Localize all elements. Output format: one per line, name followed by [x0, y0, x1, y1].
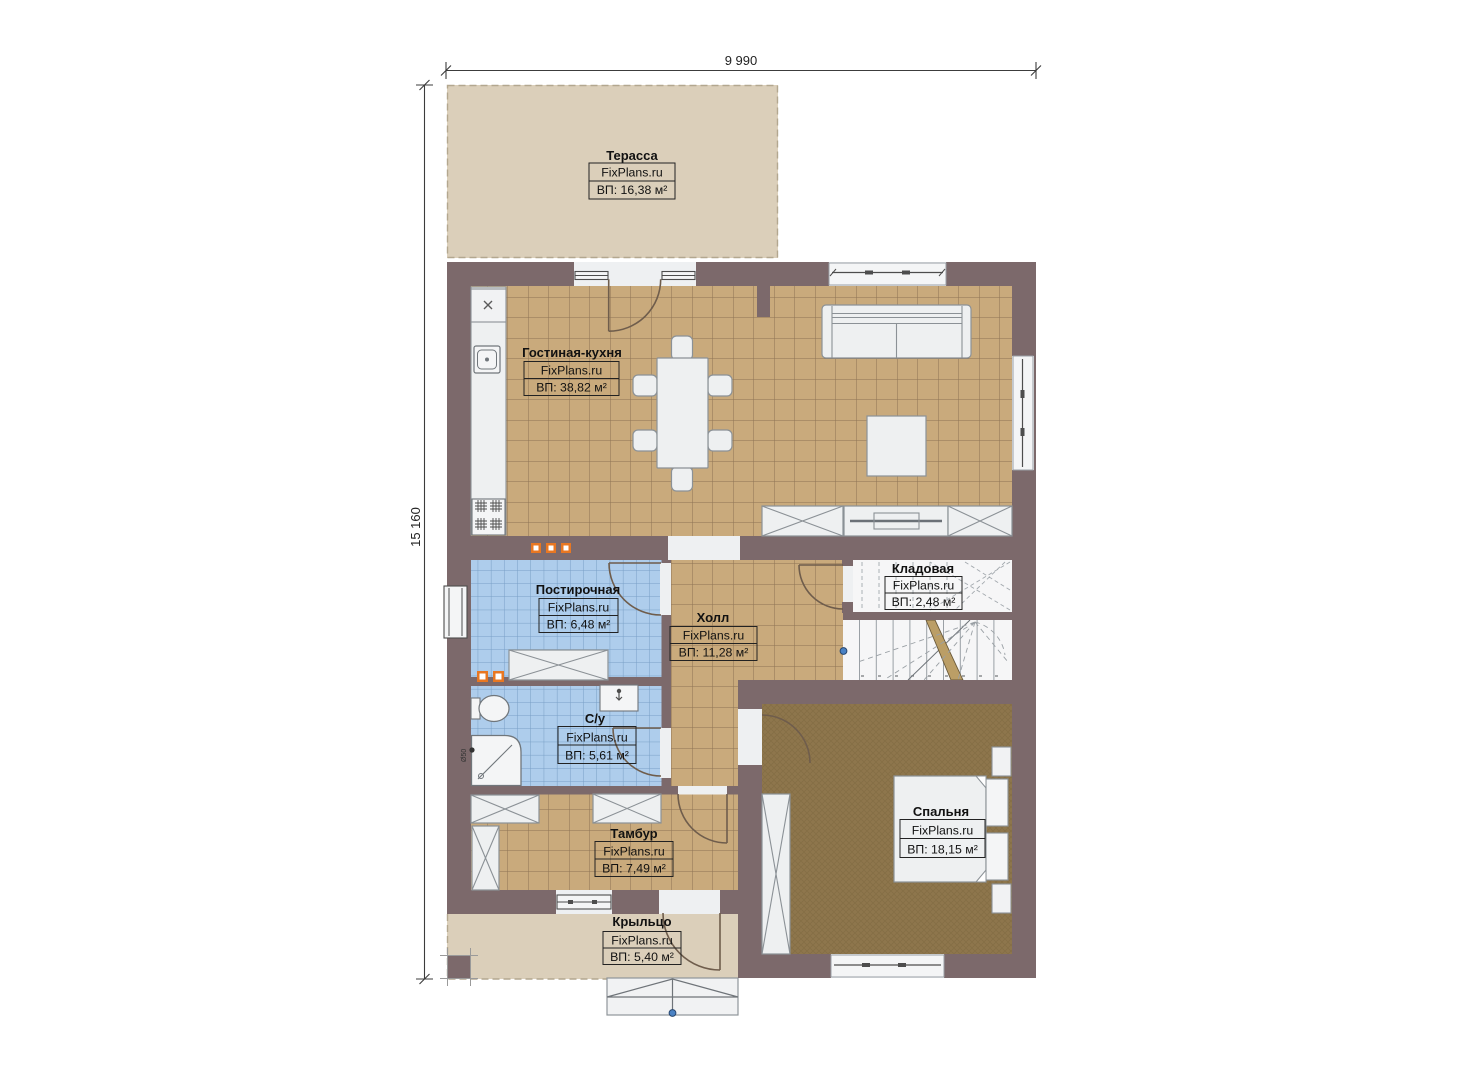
svg-text:FixPlans.ru: FixPlans.ru	[683, 629, 745, 643]
svg-text:Крыльцо: Крыльцо	[612, 914, 671, 929]
svg-text:ВП: 7,49 м²: ВП: 7,49 м²	[602, 862, 666, 876]
svg-text:ВП: 16,38 м²: ВП: 16,38 м²	[597, 183, 668, 197]
svg-text:С/у: С/у	[585, 711, 606, 726]
svg-text:FixPlans.ru: FixPlans.ru	[541, 364, 603, 378]
svg-text:ВП: 18,15 м²: ВП: 18,15 м²	[907, 843, 978, 857]
svg-text:Постирочная: Постирочная	[536, 582, 620, 597]
svg-text:Терасса: Терасса	[606, 148, 658, 163]
svg-text:ВП: 5,61 м²: ВП: 5,61 м²	[565, 749, 629, 763]
svg-text:FixPlans.ru: FixPlans.ru	[566, 731, 628, 745]
svg-text:15 160: 15 160	[408, 507, 423, 547]
svg-text:Тамбур: Тамбур	[610, 826, 657, 841]
svg-text:FixPlans.ru: FixPlans.ru	[893, 579, 955, 593]
svg-text:ВП: 11,28 м²: ВП: 11,28 м²	[679, 646, 749, 660]
svg-text:Кладовая: Кладовая	[892, 561, 954, 576]
svg-text:Ø50: Ø50	[461, 749, 468, 762]
svg-text:FixPlans.ru: FixPlans.ru	[603, 845, 665, 859]
svg-text:ВП: 38,82 м²: ВП: 38,82 м²	[536, 381, 607, 395]
svg-text:FixPlans.ru: FixPlans.ru	[548, 601, 610, 615]
svg-text:FixPlans.ru: FixPlans.ru	[611, 934, 673, 948]
svg-text:Спальня: Спальня	[913, 804, 969, 819]
svg-text:Холл: Холл	[697, 610, 730, 625]
svg-text:FixPlans.ru: FixPlans.ru	[601, 166, 663, 180]
svg-text:ВП: 2,48 м²: ВП: 2,48 м²	[892, 595, 956, 609]
svg-text:ВП: 5,40 м²: ВП: 5,40 м²	[610, 950, 674, 964]
svg-text:ВП: 6,48 м²: ВП: 6,48 м²	[547, 618, 611, 632]
svg-text:9 990: 9 990	[725, 53, 758, 68]
svg-text:Гостиная-кухня: Гостиная-кухня	[522, 345, 622, 360]
svg-text:FixPlans.ru: FixPlans.ru	[912, 824, 974, 838]
